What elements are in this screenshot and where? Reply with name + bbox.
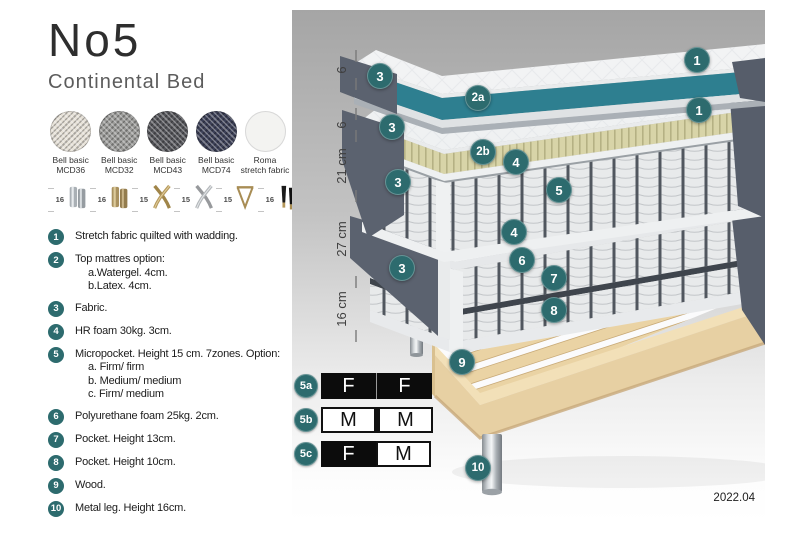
dimension-labels: 6 6 21 cm 27 cm 16 cm <box>334 66 349 326</box>
fabric-swatch: Bell basicMCD74 <box>194 111 240 175</box>
leg-option: 16 <box>96 183 132 216</box>
list-item: 6 Polyurethane foam 25kg. 2cm. <box>48 409 292 425</box>
brass-cylinder-legs-icon <box>108 183 132 216</box>
list-item-subtext: b. Medium/ medium <box>88 375 280 389</box>
list-item: 10 Metal leg. Height 16cm. <box>48 501 292 517</box>
list-item-subtext: c. Firm/ medium <box>88 388 280 402</box>
leg-height-label: 15 <box>180 195 190 204</box>
list-item: 3 Fabric. <box>48 301 292 317</box>
fabric-swatch-circle <box>99 111 140 152</box>
firmness-cell: M <box>321 407 376 433</box>
firmness-cell: F <box>321 441 376 467</box>
callout-5-micropocket: 5 <box>546 177 572 203</box>
firmness-row-5c: 5c F M <box>294 441 433 467</box>
fabric-code: MCD74 <box>202 165 231 175</box>
list-item-subtext: a.Watergel. 4cm. <box>88 267 168 281</box>
chrome-cylinder-legs-icon <box>66 183 90 216</box>
fabric-name: Bell basic <box>53 155 89 165</box>
callout-3-fabric-a: 3 <box>367 63 393 89</box>
dim-label: 6 <box>334 121 349 128</box>
fabric-swatch: Bell basicMCD36 <box>48 111 94 175</box>
product-title: No5 <box>48 16 292 64</box>
list-number-badge: 7 <box>48 432 64 448</box>
firmness-cell: M <box>376 441 431 467</box>
version-label: 2022.04 <box>713 492 755 504</box>
list-number-badge: 2 <box>48 252 64 268</box>
dim-label: 6 <box>334 66 349 73</box>
dim-label: 16 cm <box>334 291 349 326</box>
fabric-code: MCD32 <box>105 165 134 175</box>
fabric-swatch: Romastretch fabric <box>242 111 288 175</box>
dim-label: 27 cm <box>334 221 349 256</box>
list-item-text: Top mattres option: <box>75 253 168 267</box>
firmness-row-5a: 5a F F <box>294 373 433 399</box>
list-item: 8 Pocket. Height 10cm. <box>48 455 292 471</box>
fabric-swatch: Bell basicMCD32 <box>97 111 143 175</box>
fabric-swatch-circle <box>50 111 91 152</box>
list-item: 9 Wood. <box>48 478 292 494</box>
list-number-badge: 10 <box>48 501 64 517</box>
firmness-cell: F <box>321 373 376 399</box>
list-item: 4 HR foam 30kg. 3cm. <box>48 324 292 340</box>
fabric-name: Bell basic <box>198 155 234 165</box>
list-number-badge: 4 <box>48 324 64 340</box>
leg-option: 16 <box>54 183 90 216</box>
fabric-swatch-circle <box>245 111 286 152</box>
fabric-code: stretch fabric <box>241 165 290 175</box>
product-info-panel: No5 Continental Bed Bell basicMCD36 Bell… <box>0 0 292 533</box>
list-item-text: Pocket. Height 13cm. <box>75 432 176 447</box>
callout-3-fabric-b: 3 <box>379 114 405 140</box>
hairpin-legs-icon <box>234 183 258 216</box>
leg-height-label: 15 <box>138 195 148 204</box>
spec-list: 1 Stretch fabric quilted with wadding. 2… <box>48 229 292 517</box>
firmness-cell: F <box>377 373 432 399</box>
firmness-badge: 5a <box>294 374 318 398</box>
callout-3-fabric-d: 3 <box>389 255 415 281</box>
callout-1-top: 1 <box>684 47 710 73</box>
list-item-text: HR foam 30kg. 3cm. <box>75 324 172 339</box>
list-item-text: Wood. <box>75 478 106 493</box>
list-item: 7 Pocket. Height 13cm. <box>48 432 292 448</box>
list-item: 1 Stretch fabric quilted with wadding. <box>48 229 292 245</box>
leg-height-label: 16 <box>264 195 274 204</box>
callout-9-wood: 9 <box>449 349 475 375</box>
list-item-subtext: b.Latex. 4cm. <box>88 280 168 294</box>
list-item-text: Pocket. Height 10cm. <box>75 455 176 470</box>
list-item: 2 Top mattres option: a.Watergel. 4cm. b… <box>48 252 292 294</box>
leg-option: 15 <box>222 183 258 216</box>
callout-1-mid: 1 <box>686 97 712 123</box>
leg-option: 15 <box>138 183 174 216</box>
firmness-badge: 5c <box>294 442 318 466</box>
list-number-badge: 8 <box>48 455 64 471</box>
list-number-badge: 6 <box>48 409 64 425</box>
list-number-badge: 5 <box>48 347 64 363</box>
callout-4-foam-top: 4 <box>503 149 529 175</box>
firmness-cell: M <box>378 407 433 433</box>
leg-options-row: 16 16 15 15 15 16 <box>48 183 290 216</box>
list-item-text: Polyurethane foam 25kg. 2cm. <box>75 409 219 424</box>
callout-4-foam-bottom: 4 <box>501 219 527 245</box>
gold-cross-legs-icon <box>150 183 174 216</box>
list-number-badge: 1 <box>48 229 64 245</box>
silver-cross-legs-icon <box>192 183 216 216</box>
list-number-badge: 3 <box>48 301 64 317</box>
fabric-swatch-circle <box>196 111 237 152</box>
list-item-text: Stretch fabric quilted with wadding. <box>75 229 238 244</box>
list-item-text: Metal leg. Height 16cm. <box>75 501 186 516</box>
list-number-badge: 9 <box>48 478 64 494</box>
fabric-swatch-circle <box>147 111 188 152</box>
list-item-text: Micropocket. Height 15 cm. 7zones. Optio… <box>75 348 280 362</box>
fabric-code: MCD36 <box>56 165 85 175</box>
fabric-code: MCD43 <box>153 165 182 175</box>
callout-2a-watergel: 2a <box>465 85 491 111</box>
fabric-name: Bell basic <box>150 155 186 165</box>
leg-height-label: 16 <box>54 195 64 204</box>
callout-6-polyfoam: 6 <box>509 247 535 273</box>
fabric-name: Bell basic <box>101 155 137 165</box>
list-item-subtext: a. Firm/ firm <box>88 361 280 375</box>
bed-cutaway-panel: 6 6 21 cm 27 cm 16 cm 1 2a 3 1 2b 3 4 5 … <box>292 10 765 523</box>
fabric-swatch: Bell basicMCD43 <box>145 111 191 175</box>
list-item: 5 Micropocket. Height 15 cm. 7zones. Opt… <box>48 347 292 402</box>
product-subtitle: Continental Bed <box>48 71 292 94</box>
callout-3-fabric-c: 3 <box>385 169 411 195</box>
callout-2b-latex: 2b <box>470 139 496 165</box>
firmness-badge: 5b <box>294 408 318 432</box>
list-item-text: Fabric. <box>75 301 107 316</box>
fabric-swatch-row: Bell basicMCD36 Bell basicMCD32 Bell bas… <box>48 111 288 175</box>
leg-height-label: 16 <box>96 195 106 204</box>
dim-label: 21 cm <box>334 148 349 183</box>
leg-height-label: 15 <box>222 195 232 204</box>
firmness-row-5b: 5b M M <box>294 407 433 433</box>
fabric-name: Roma <box>254 155 277 165</box>
leg-option: 15 <box>180 183 216 216</box>
callout-8-pocket10: 8 <box>541 297 567 323</box>
firmness-table: 5a F F 5b M M 5c F M <box>294 373 433 475</box>
callout-10-leg: 10 <box>465 455 491 481</box>
callout-7-pocket13: 7 <box>541 265 567 291</box>
